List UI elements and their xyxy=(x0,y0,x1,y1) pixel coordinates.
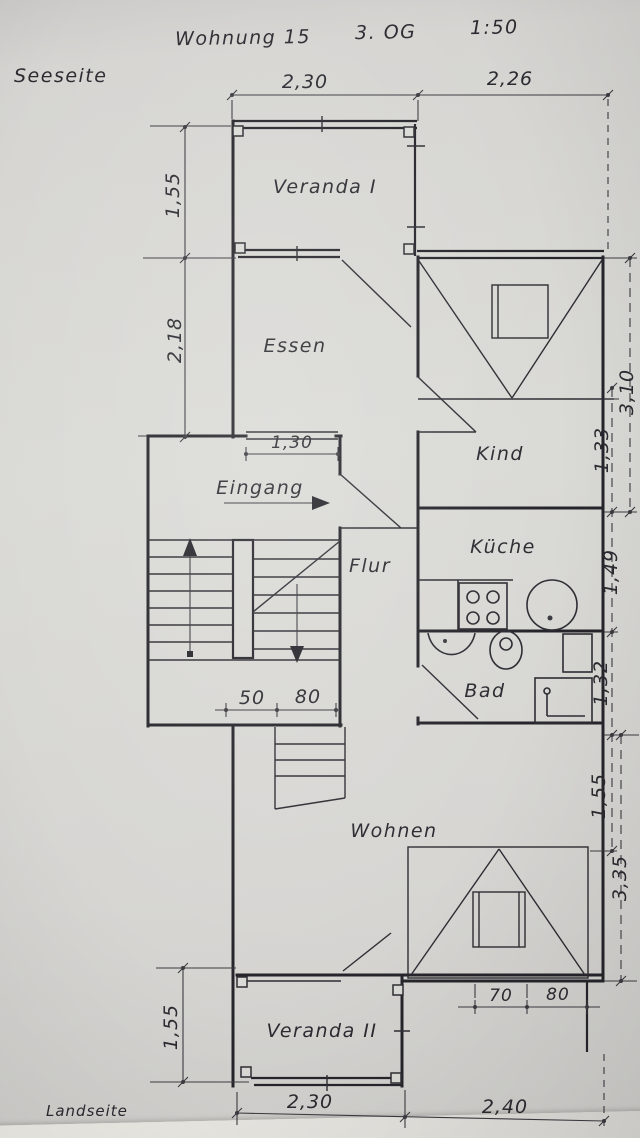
plan-title-project: Wohnung 15 xyxy=(175,26,311,50)
dim-small-2: 80 xyxy=(546,985,570,1005)
wohnen-roof-slope-lines xyxy=(411,849,585,975)
dim-top-2: 2,26 xyxy=(487,68,533,90)
room-label-kind: Kind xyxy=(476,443,524,465)
veranda2-door-swing xyxy=(343,933,391,971)
dim-left-3: 1,55 xyxy=(160,1004,182,1050)
orientation-label-landseite: Landseite xyxy=(46,1102,128,1120)
room-label-veranda2: Veranda II xyxy=(266,1020,377,1042)
room-label-eingang: Eingang xyxy=(216,477,304,499)
dim-left-2: 2,18 xyxy=(164,317,186,363)
dim-small-1: 70 xyxy=(489,986,513,1006)
wohnen-window xyxy=(473,892,525,947)
dim-top-1: 2,30 xyxy=(282,71,328,93)
stairs-up-arrow-icon xyxy=(183,538,197,657)
orientation-label-seeseite: Seeseite xyxy=(14,65,107,87)
title-block: Wohnung 15 3. OG 1:50 xyxy=(175,16,519,50)
plan-title-floor: 3. OG xyxy=(355,21,417,44)
walls xyxy=(148,121,604,1086)
dim-right-3: 1,32 xyxy=(590,660,612,706)
kind-roof-slope-lines xyxy=(419,260,602,398)
room-label-essen: Essen xyxy=(263,335,326,357)
dim-right-4: 1,55 xyxy=(588,773,610,819)
wohnen-dormer-outline xyxy=(408,847,588,978)
room-label-flur: Flur xyxy=(349,555,391,577)
dim-stair-2: 80 xyxy=(295,686,321,708)
bathroom-fixtures xyxy=(428,631,592,723)
kitchen-fixtures xyxy=(418,580,577,631)
stairs-down-arrow-icon xyxy=(290,584,304,663)
veranda-corner-posts xyxy=(233,116,425,1091)
room-label-veranda1: Veranda I xyxy=(273,176,377,198)
kind-skylight-window xyxy=(492,285,548,338)
dim-bottom-2: 2,40 xyxy=(482,1096,528,1118)
dim-left-1: 1,55 xyxy=(162,172,184,218)
room-label-bad: Bad xyxy=(464,680,505,702)
dimension-lines xyxy=(138,90,639,1128)
scanned-floor-plan-page: Wohnung 15 3. OG 1:50 Seeseite Landseite xyxy=(0,0,640,1138)
dim-right-outer-top: 3,10 xyxy=(616,369,638,415)
shower-symbol xyxy=(563,634,592,672)
stove-symbol xyxy=(459,583,507,629)
floor-plan-drawing: Wohnung 15 3. OG 1:50 Seeseite Landseite xyxy=(0,0,640,1138)
kind-door-swing xyxy=(418,377,476,432)
room-labels: Veranda I Essen Kind Eingang Flur Küche … xyxy=(216,176,536,1042)
sink-symbol xyxy=(527,580,577,630)
dim-stair-1: 50 xyxy=(239,687,265,709)
washbasin-symbol xyxy=(428,633,475,655)
dim-right-outer-bottom: 3,35 xyxy=(609,855,631,901)
staircase xyxy=(148,538,345,809)
kitchen-counter xyxy=(418,580,513,631)
dim-bottom-1: 2,30 xyxy=(287,1091,333,1113)
dim-door-width: 1,30 xyxy=(271,433,313,453)
dim-right-1: 1,33 xyxy=(591,427,613,473)
veranda1-door-swing xyxy=(342,260,411,327)
plan-title-scale: 1:50 xyxy=(470,16,519,39)
room-label-wohnen: Wohnen xyxy=(350,820,437,842)
dim-right-2: 1,49 xyxy=(600,549,622,595)
room-label-kueche: Küche xyxy=(470,536,536,558)
flur-door-swing xyxy=(340,474,418,528)
